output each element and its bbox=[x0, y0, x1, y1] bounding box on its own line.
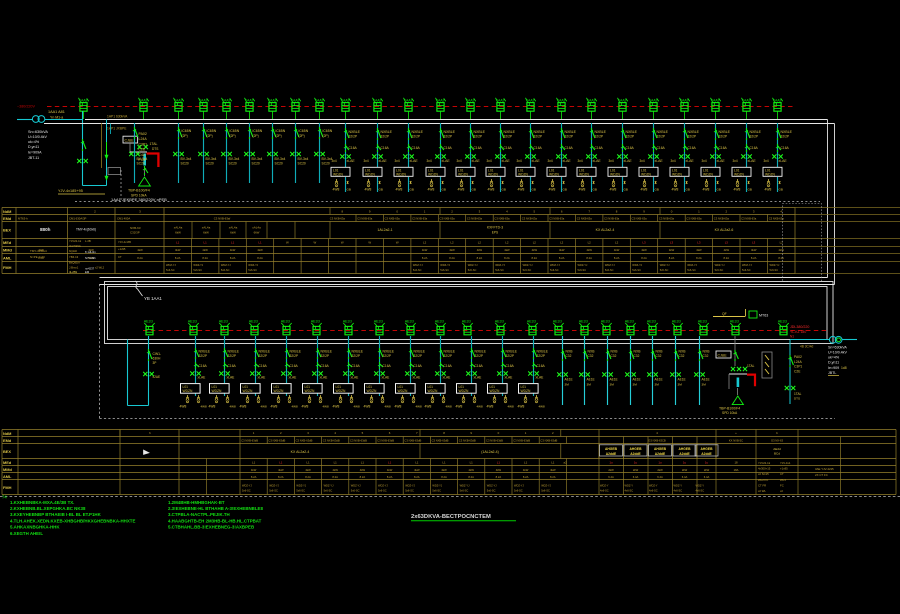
svg-text:8.2A: 8.2A bbox=[696, 256, 702, 260]
svg-text:C32: C32 bbox=[588, 354, 594, 358]
svg-text:4kW: 4kW bbox=[587, 248, 593, 252]
svg-text:GB: GB bbox=[410, 188, 414, 192]
svg-text:L1: L1 bbox=[470, 461, 474, 465]
svg-text:1AA2: 1AA2 bbox=[436, 98, 444, 102]
svg-text:C16A: C16A bbox=[383, 364, 392, 368]
svg-text:4L2B9: 4L2B9 bbox=[69, 270, 78, 274]
svg-text:AE2d: AE2d bbox=[625, 319, 634, 323]
svg-text:4kW: 4kW bbox=[724, 248, 730, 252]
svg-text:5x6-SC: 5x6-SC bbox=[770, 268, 779, 272]
svg-text:3M: 3M bbox=[565, 382, 570, 386]
svg-text:MEd: MEd bbox=[3, 240, 12, 245]
svg-text:WDZ-Y: WDZ-Y bbox=[649, 483, 658, 487]
svg-text:8.2A: 8.2A bbox=[414, 475, 420, 479]
svg-text:U=10/0.4kV: U=10/0.4kV bbox=[28, 135, 47, 139]
svg-text:C16A: C16A bbox=[381, 146, 390, 150]
svg-text:iC65N: iC65N bbox=[230, 129, 240, 133]
svg-text:iC65N: iC65N bbox=[323, 129, 333, 133]
svg-text:C3 NXB-63dB: C3 NXB-63dB bbox=[432, 438, 449, 442]
svg-text:C16A: C16A bbox=[199, 364, 208, 368]
svg-text:BCd: BCd bbox=[774, 452, 780, 456]
svg-text:5x6-SC: 5x6-SC bbox=[742, 268, 751, 272]
svg-text:1AA2: 1AA2 bbox=[245, 98, 253, 102]
svg-text:TBP-B100/F4: TBP-B100/F4 bbox=[719, 407, 740, 411]
svg-text:(2P): (2P) bbox=[182, 134, 188, 138]
svg-text:C16A: C16A bbox=[475, 364, 484, 368]
svg-text:Ie=909: Ie=909 bbox=[828, 366, 839, 370]
svg-text:(2P): (2P) bbox=[230, 134, 236, 138]
svg-text:W: W bbox=[286, 240, 289, 244]
svg-text:W: W bbox=[314, 240, 317, 244]
svg-text:1AA2: 1AA2 bbox=[222, 98, 230, 102]
svg-text:KX AL2a2-4: KX AL2a2-4 bbox=[291, 450, 310, 454]
svg-text:5x6-SC: 5x6-SC bbox=[468, 268, 477, 272]
svg-text:bQdxh: bQdxh bbox=[69, 249, 78, 253]
svg-text:4W8: 4W8 bbox=[734, 188, 741, 192]
svg-text:EPS: EPS bbox=[492, 231, 498, 235]
svg-text:1u: 1u bbox=[609, 461, 613, 465]
svg-text:xLAE: xLAE bbox=[686, 159, 695, 163]
svg-text:2kW: 2kW bbox=[608, 468, 614, 472]
svg-text:8.2A: 8.2A bbox=[387, 475, 393, 479]
svg-text:WDZ-YJ: WDZ-YJ bbox=[514, 483, 524, 487]
svg-text:5x6-SC: 5x6-SC bbox=[578, 268, 587, 272]
svg-text:C2E: C2E bbox=[794, 369, 801, 373]
svg-text:WDZN: WDZN bbox=[365, 173, 376, 177]
svg-text:AE1E: AE1E bbox=[702, 378, 710, 382]
svg-text:4kW: 4kW bbox=[230, 248, 236, 252]
svg-text:1AA2: 1AA2 bbox=[341, 98, 349, 102]
svg-text:8.2A: 8.2A bbox=[422, 256, 428, 260]
svg-text:A2ddE: A2ddE bbox=[655, 452, 666, 456]
svg-text:WDZ-YJ: WDZ-YJ bbox=[378, 483, 388, 487]
svg-text:WDZ-YJ: WDZ-YJ bbox=[541, 483, 551, 487]
svg-text:BEX: BEX bbox=[3, 228, 11, 233]
svg-text:WDZ-YJ: WDZ-YJ bbox=[770, 263, 780, 267]
svg-text:8.2A: 8.2A bbox=[468, 475, 474, 479]
svg-text:1AL2a2-1: 1AL2a2-1 bbox=[377, 228, 392, 232]
svg-text:C3 NXB-63a: C3 NXB-63a bbox=[741, 216, 757, 220]
svg-text:NXBLE: NXBLE bbox=[626, 130, 638, 134]
svg-text:WDZN: WDZN bbox=[521, 389, 532, 393]
svg-text:1AA2: 1AA2 bbox=[496, 98, 504, 102]
svg-text:GB: GB bbox=[593, 188, 597, 192]
svg-text:32/2P: 32/2P bbox=[781, 135, 790, 139]
svg-text:Sn=630kVA: Sn=630kVA bbox=[828, 345, 847, 349]
svg-text:3x4: 3x4 bbox=[487, 159, 492, 163]
svg-text:4kW: 4kW bbox=[449, 248, 455, 252]
svg-text:NXBLE: NXBLE bbox=[504, 130, 516, 134]
svg-text:L2: L2 bbox=[588, 240, 592, 244]
svg-text:C3 NXB-63a: C3 NXB-63a bbox=[549, 216, 565, 220]
svg-text:4W8: 4W8 bbox=[240, 405, 247, 409]
svg-text:GB: GB bbox=[748, 188, 752, 192]
svg-text:BV-3x4: BV-3x4 bbox=[275, 157, 286, 161]
svg-text:WDZ-Y: WDZ-Y bbox=[600, 483, 609, 487]
svg-text:W: W bbox=[341, 240, 344, 244]
svg-text:NXB: NXB bbox=[588, 350, 596, 354]
svg-text:4kW: 4kW bbox=[696, 248, 702, 252]
svg-text:4W8: 4W8 bbox=[333, 405, 340, 409]
svg-text:NXBLE: NXBLE bbox=[199, 350, 211, 354]
svg-text:5x6-SC: 5x6-SC bbox=[432, 488, 441, 492]
svg-text:iC65N: iC65N bbox=[207, 129, 217, 133]
svg-text:AE2d: AE2d bbox=[144, 319, 153, 323]
svg-text:x2 WL2: x2 WL2 bbox=[95, 266, 105, 270]
svg-text:630H: 630H bbox=[153, 357, 162, 361]
svg-text:(2P): (2P) bbox=[323, 134, 329, 138]
svg-text:1AA2: 1AA2 bbox=[526, 98, 534, 102]
svg-text:L1: L1 bbox=[203, 240, 207, 244]
svg-text:xLAE: xLAE bbox=[536, 375, 545, 379]
svg-text:A2ddE: A2ddE bbox=[701, 452, 712, 456]
svg-text:AHGEB: AHGEB bbox=[701, 447, 714, 451]
svg-text:4kW: 4kW bbox=[202, 248, 208, 252]
svg-text:5x6-SC: 5x6-SC bbox=[440, 268, 449, 272]
svg-text:1u: 1u bbox=[683, 461, 687, 465]
svg-text:NXBLE: NXBLE bbox=[537, 350, 549, 354]
svg-text:NXBLE: NXBLE bbox=[412, 130, 424, 134]
svg-text:5x6-SC: 5x6-SC bbox=[405, 488, 414, 492]
svg-text:L3: L3 bbox=[642, 240, 646, 244]
svg-text:~380/220V: ~380/220V bbox=[17, 105, 35, 109]
svg-text:L1: L1 bbox=[551, 461, 555, 465]
svg-text:MEd: MEd bbox=[3, 460, 12, 465]
svg-text:32/2P: 32/2P bbox=[719, 135, 728, 139]
svg-text:xLAE: xLAE bbox=[779, 159, 788, 163]
svg-text:AE1E: AE1E bbox=[633, 378, 641, 382]
svg-text:WDZ-YJ: WDZ-YJ bbox=[296, 483, 306, 487]
svg-text:NXBLE: NXBLE bbox=[352, 350, 364, 354]
svg-text:1.2M4BHB-HMHBGHAK-BT: 1.2M4BHB-HMHBGHAK-BT bbox=[168, 500, 225, 505]
svg-text:BEX: BEX bbox=[3, 449, 11, 454]
svg-text:WDZN: WDZN bbox=[579, 173, 590, 177]
svg-text:C3 NXB-63a: C3 NXB-63a bbox=[330, 216, 346, 220]
svg-text:YJV-4x185+95: YJV-4x185+95 bbox=[58, 189, 83, 193]
svg-text:L1: L1 bbox=[497, 461, 501, 465]
svg-text:4kW: 4kW bbox=[175, 248, 181, 252]
svg-text:4kW: 4kW bbox=[669, 248, 675, 252]
svg-text:2kW: 2kW bbox=[657, 468, 663, 472]
svg-text:4W8: 4W8 bbox=[180, 405, 187, 409]
svg-text:1AP1 JXBPE: 1AP1 JXBPE bbox=[107, 127, 127, 131]
svg-text:18A: 18A bbox=[734, 468, 739, 472]
svg-text:3M: 3M bbox=[702, 382, 707, 386]
svg-text:WDZN: WDZN bbox=[458, 173, 469, 177]
svg-text:BV-3x4: BV-3x4 bbox=[252, 157, 263, 161]
svg-text:N=PE 2x40: N=PE 2x40 bbox=[30, 255, 45, 259]
svg-text:1AA2: 1AA2 bbox=[174, 98, 182, 102]
svg-text:WDZ-YJ: WDZ-YJ bbox=[550, 263, 560, 267]
svg-text:WDZN: WDZN bbox=[367, 389, 378, 393]
svg-text:CJ&E: CJ&E bbox=[125, 139, 135, 143]
svg-text:8.2A: 8.2A bbox=[251, 475, 257, 479]
svg-text:BV-3x4: BV-3x4 bbox=[137, 157, 148, 161]
svg-text:C3 NXB-63dB: C3 NXB-63dB bbox=[241, 438, 258, 442]
svg-text:L1: L1 bbox=[279, 461, 283, 465]
svg-text:C3 NXB-63a: C3 NXB-63a bbox=[632, 216, 648, 220]
svg-text:2.3!EXHEBNE-HL BTHAHB A-3!EXHE: 2.3!EXHEBNE-HL BTHAHB A-3!EXHEBNBLE8 bbox=[168, 506, 263, 511]
svg-text:32/2P: 32/2P bbox=[506, 354, 515, 358]
svg-text:3x4: 3x4 bbox=[457, 159, 462, 163]
svg-text:AE1E: AE1E bbox=[678, 378, 686, 382]
svg-text:GB: GB bbox=[717, 188, 721, 192]
svg-text:1AA2: 1AA2 bbox=[557, 98, 565, 102]
svg-text:8.2A: 8.2A bbox=[641, 256, 647, 260]
svg-text:4kW: 4kW bbox=[360, 468, 366, 472]
svg-text:4W8: 4W8 bbox=[354, 405, 361, 409]
svg-text:4W8: 4W8 bbox=[703, 188, 710, 192]
svg-text:YJV-4x185: YJV-4x185 bbox=[118, 240, 132, 244]
svg-text:NXBLE: NXBLE bbox=[259, 350, 271, 354]
svg-text:CJ&E: CJ&E bbox=[718, 353, 728, 357]
svg-text:Sn=630kVA: Sn=630kVA bbox=[28, 130, 48, 134]
svg-text:4W8: 4W8 bbox=[365, 188, 372, 192]
svg-text:1AA2: 1AA2 bbox=[466, 98, 474, 102]
svg-text:C3 NXB-63a: C3 NXB-63a bbox=[494, 216, 510, 220]
svg-text:74: 74 bbox=[2, 495, 7, 500]
svg-text:4kW: 4kW bbox=[441, 468, 447, 472]
svg-text:4W8: 4W8 bbox=[201, 405, 208, 409]
svg-text:8.2A: 8.2A bbox=[532, 256, 538, 260]
svg-text:AE2d: AE2d bbox=[311, 319, 320, 323]
svg-text:NXB: NXB bbox=[611, 350, 619, 354]
svg-text:1AA2: 1AA2 bbox=[649, 98, 657, 102]
svg-text:1u: 1u bbox=[658, 461, 662, 465]
svg-text:8.2A: 8.2A bbox=[504, 256, 510, 260]
svg-text:4x6-SC: 4x6-SC bbox=[696, 488, 705, 492]
svg-text:x2: x2 bbox=[780, 489, 783, 493]
svg-text:MMd: MMd bbox=[3, 248, 12, 253]
svg-text:4kW: 4kW bbox=[614, 248, 620, 252]
svg-text:AE1E: AE1E bbox=[587, 378, 595, 382]
svg-text:SC20: SC20 bbox=[298, 162, 306, 166]
svg-text:5x6-SC: 5x6-SC bbox=[193, 268, 202, 272]
svg-text:3x4: 3x4 bbox=[671, 159, 676, 163]
svg-text:8.2A: 8.2A bbox=[137, 256, 143, 260]
svg-text:WDZ-YJ: WDZ-YJ bbox=[413, 263, 423, 267]
svg-text:G3 NXB-63CB: G3 NXB-63CB bbox=[648, 438, 666, 442]
svg-text:WDZ-YJ: WDZ-YJ bbox=[632, 263, 642, 267]
svg-text:iC65N: iC65N bbox=[276, 129, 286, 133]
svg-text:WDZN: WDZN bbox=[672, 173, 683, 177]
svg-text:G3 NX-63: G3 NX-63 bbox=[771, 438, 783, 442]
svg-text:8.2A: 8.2A bbox=[202, 256, 208, 260]
svg-text:WDZ-YJ: WDZ-YJ bbox=[687, 263, 697, 267]
svg-text:5x6-SC: 5x6-SC bbox=[632, 268, 641, 272]
svg-text:WDZN: WDZN bbox=[333, 173, 344, 177]
svg-text:WDZ-YJ: WDZ-YJ bbox=[221, 263, 231, 267]
svg-text:x2 SC15: x2 SC15 bbox=[758, 472, 769, 476]
svg-text:32/2P: 32/2P bbox=[381, 135, 390, 139]
svg-text:WDZN: WDZN bbox=[305, 389, 316, 393]
svg-text:3x4: 3x4 bbox=[517, 159, 522, 163]
svg-text:3x4: 3x4 bbox=[733, 159, 738, 163]
svg-text:WDZ-YJ: WDZ-YJ bbox=[440, 263, 450, 267]
svg-text:C16A: C16A bbox=[352, 364, 361, 368]
svg-text:WDZ-YJ: WDZ-YJ bbox=[324, 483, 334, 487]
svg-text:32/2P: 32/2P bbox=[290, 354, 299, 358]
svg-text:1TAL: 1TAL bbox=[150, 142, 158, 146]
svg-text:YL-KZ 180: YL-KZ 180 bbox=[790, 330, 806, 334]
svg-text:32/2P: 32/2P bbox=[475, 354, 484, 358]
svg-text:AE2d: AE2d bbox=[435, 319, 444, 323]
svg-text:5x6-SC: 5x6-SC bbox=[541, 488, 550, 492]
svg-text:4kW: 4kW bbox=[751, 248, 757, 252]
svg-text:(1AL2a2-4): (1AL2a2-4) bbox=[481, 450, 499, 454]
svg-text:C16A: C16A bbox=[719, 146, 728, 150]
svg-text:NXB: NXB bbox=[679, 350, 687, 354]
svg-text:WDZ-YJ: WDZ-YJ bbox=[351, 483, 361, 487]
svg-text:WDZN: WDZN bbox=[212, 389, 223, 393]
svg-text:8.2A: 8.2A bbox=[559, 256, 565, 260]
svg-text:WDZN: WDZN bbox=[765, 173, 776, 177]
svg-text:WDZ-YJ: WDZ-YJ bbox=[432, 483, 442, 487]
svg-text:C2E: C2E bbox=[139, 148, 146, 152]
svg-text:D,yn11: D,yn11 bbox=[28, 145, 39, 149]
svg-text:WDZN: WDZN bbox=[549, 173, 560, 177]
svg-text:1AA2: 1AA2 bbox=[742, 98, 750, 102]
svg-text:L1: L1 bbox=[258, 240, 262, 244]
svg-text:4W8: 4W8 bbox=[579, 188, 586, 192]
svg-text:WDZ-YJ: WDZ-YJ bbox=[193, 263, 203, 267]
svg-text:L24A: L24A bbox=[794, 360, 803, 364]
svg-text:NXBLE: NXBLE bbox=[534, 130, 546, 134]
svg-text:4W8: 4W8 bbox=[488, 188, 495, 192]
svg-text:WDZN: WDZN bbox=[459, 389, 470, 393]
svg-text:L2: L2 bbox=[423, 240, 427, 244]
svg-text:1AA2: 1AA2 bbox=[680, 98, 688, 102]
svg-text:32/2P: 32/2P bbox=[383, 354, 392, 358]
svg-text:C32: C32 bbox=[679, 354, 685, 358]
svg-text:C16A: C16A bbox=[504, 146, 513, 150]
svg-text:32/2P: 32/2P bbox=[444, 135, 453, 139]
svg-text:SC20: SC20 bbox=[137, 162, 145, 166]
svg-text:4W8: 4W8 bbox=[209, 405, 216, 409]
svg-text:AE2d: AE2d bbox=[188, 319, 197, 323]
svg-text:32/2P: 32/2P bbox=[321, 354, 330, 358]
svg-text:YJV22-1k: YJV22-1k bbox=[69, 239, 82, 243]
svg-text:L3: L3 bbox=[670, 240, 674, 244]
svg-text:4W8: 4W8 bbox=[487, 405, 494, 409]
svg-text:xLAE: xLAE bbox=[655, 159, 664, 163]
svg-text:xLAE: xLAE bbox=[442, 159, 451, 163]
svg-text:SC20: SC20 bbox=[206, 162, 214, 166]
svg-text:5x6-SC: 5x6-SC bbox=[242, 488, 251, 492]
svg-text:BV-3x4: BV-3x4 bbox=[206, 157, 217, 161]
svg-text:W: W bbox=[396, 240, 399, 244]
svg-text:+1x95: +1x95 bbox=[780, 467, 788, 471]
svg-text:L2: L2 bbox=[615, 240, 619, 244]
svg-text:C16A: C16A bbox=[349, 146, 358, 150]
svg-text:C3 NXB-63dB: C3 NXB-63dB bbox=[350, 438, 367, 442]
svg-text:5x6-SC: 5x6-SC bbox=[495, 268, 504, 272]
svg-text:(2P): (2P) bbox=[276, 134, 282, 138]
svg-text:32/2P: 32/2P bbox=[504, 135, 513, 139]
svg-text:WDZN: WDZN bbox=[428, 173, 439, 177]
svg-text:4W8: 4W8 bbox=[302, 405, 309, 409]
svg-text:4kW: 4kW bbox=[251, 468, 257, 472]
svg-text:8.2A: 8.2A bbox=[751, 256, 757, 260]
svg-text:6.4A: 6.4A bbox=[633, 475, 639, 479]
svg-text:C3 NXB-63dB: C3 NXB-63dB bbox=[486, 438, 503, 442]
svg-text:WDZN: WDZN bbox=[490, 389, 501, 393]
svg-text:4.TLH.AHEK.XEDN.KXEB-XHBGHB/HK: 4.TLH.AHEK.XEDN.KXEB-XHBGHB/HKXGHEBNBKA-… bbox=[10, 519, 135, 524]
svg-text:4x6-SC: 4x6-SC bbox=[674, 488, 683, 492]
svg-text:C32: C32 bbox=[656, 354, 662, 358]
svg-text:1AA2: 1AA2 bbox=[618, 98, 626, 102]
svg-text:AHGEB: AHGEB bbox=[605, 447, 618, 451]
svg-text:YJV-4x1: YJV-4x1 bbox=[780, 461, 791, 465]
svg-text:NXBLE: NXBLE bbox=[475, 350, 487, 354]
svg-text:6.XEGTH AHEIL: 6.XEGTH AHEIL bbox=[10, 531, 43, 536]
svg-text:8.2A: 8.2A bbox=[669, 256, 675, 260]
svg-text:C16A: C16A bbox=[534, 146, 543, 150]
svg-text:+1x95: +1x95 bbox=[118, 247, 126, 251]
svg-text:xLAE: xLAE bbox=[624, 159, 633, 163]
svg-text:WDZ-YJ: WDZ-YJ bbox=[166, 263, 176, 267]
svg-text:KX AL2a2-4: KX AL2a2-4 bbox=[596, 228, 615, 232]
svg-text:4kW: 4kW bbox=[532, 248, 538, 252]
svg-text:C3 NXB-63dB: C3 NXB-63dB bbox=[296, 438, 313, 442]
svg-text:NXBLE: NXBLE bbox=[444, 350, 456, 354]
svg-text:3x4: 3x4 bbox=[702, 159, 707, 163]
svg-text:4W8: 4W8 bbox=[261, 405, 268, 409]
svg-text:MMd: MMd bbox=[3, 467, 12, 472]
svg-text:2kW: 2kW bbox=[704, 468, 710, 472]
svg-text:5x6-SC: 5x6-SC bbox=[605, 268, 614, 272]
svg-text:EMd: EMd bbox=[3, 438, 12, 443]
svg-text:C16A: C16A bbox=[474, 146, 483, 150]
svg-text:4W8: 4W8 bbox=[539, 405, 546, 409]
svg-text:880h: 880h bbox=[40, 227, 51, 232]
svg-text:C16A: C16A bbox=[444, 146, 453, 150]
svg-text:4kW: 4kW bbox=[278, 468, 284, 472]
svg-text:A2ddE: A2ddE bbox=[606, 452, 617, 456]
svg-text:(2P): (2P) bbox=[207, 134, 213, 138]
svg-text:8.2A: 8.2A bbox=[496, 475, 502, 479]
svg-text:JBT-11: JBT-11 bbox=[28, 156, 39, 160]
svg-text:32/2P: 32/2P bbox=[688, 135, 697, 139]
svg-text:xLAE: xLAE bbox=[532, 159, 541, 163]
svg-text:32/2P: 32/2P bbox=[595, 135, 604, 139]
svg-text:4W8: 4W8 bbox=[518, 188, 525, 192]
svg-text:C16A: C16A bbox=[750, 146, 759, 150]
svg-text:4W8: 4W8 bbox=[425, 405, 432, 409]
svg-text:C32: C32 bbox=[703, 354, 709, 358]
svg-text:xLAE: xLAE bbox=[593, 159, 602, 163]
svg-text:xLAE: xLAE bbox=[379, 159, 388, 163]
svg-text:32/2P: 32/2P bbox=[414, 354, 423, 358]
svg-text:1TAL: 1TAL bbox=[747, 364, 755, 368]
svg-text:8.2A: 8.2A bbox=[278, 475, 284, 479]
svg-text:MT63: MT63 bbox=[759, 314, 768, 318]
svg-text:1.KXHEBNBKA-MXA.4E/3B TX.: 1.KXHEBNBKA-MXA.4E/3B TX. bbox=[10, 500, 74, 505]
svg-text:FMH: FMH bbox=[3, 485, 12, 490]
svg-text:C3 NXB-63dB: C3 NXB-63dB bbox=[404, 438, 421, 442]
svg-text:2kW: 2kW bbox=[682, 468, 688, 472]
svg-text:C16A: C16A bbox=[228, 364, 237, 368]
svg-text:AE2d: AE2d bbox=[647, 319, 656, 323]
svg-text:1AA2: 1AA2 bbox=[373, 98, 381, 102]
svg-text:3M: 3M bbox=[655, 382, 660, 386]
svg-text:4W8: 4W8 bbox=[672, 188, 679, 192]
svg-text:L2: L2 bbox=[560, 240, 564, 244]
svg-text:xAL4a: xAL4a bbox=[174, 226, 183, 230]
svg-text:3.KXEYHEBNBP BTHAEIB I-BL BL E: 3.KXEYHEBNBP BTHAEIB I-BL BL ET.P1HK bbox=[10, 512, 102, 517]
svg-text:WDZN: WDZN bbox=[396, 173, 407, 177]
svg-text:uk=4%: uk=4% bbox=[828, 356, 840, 360]
